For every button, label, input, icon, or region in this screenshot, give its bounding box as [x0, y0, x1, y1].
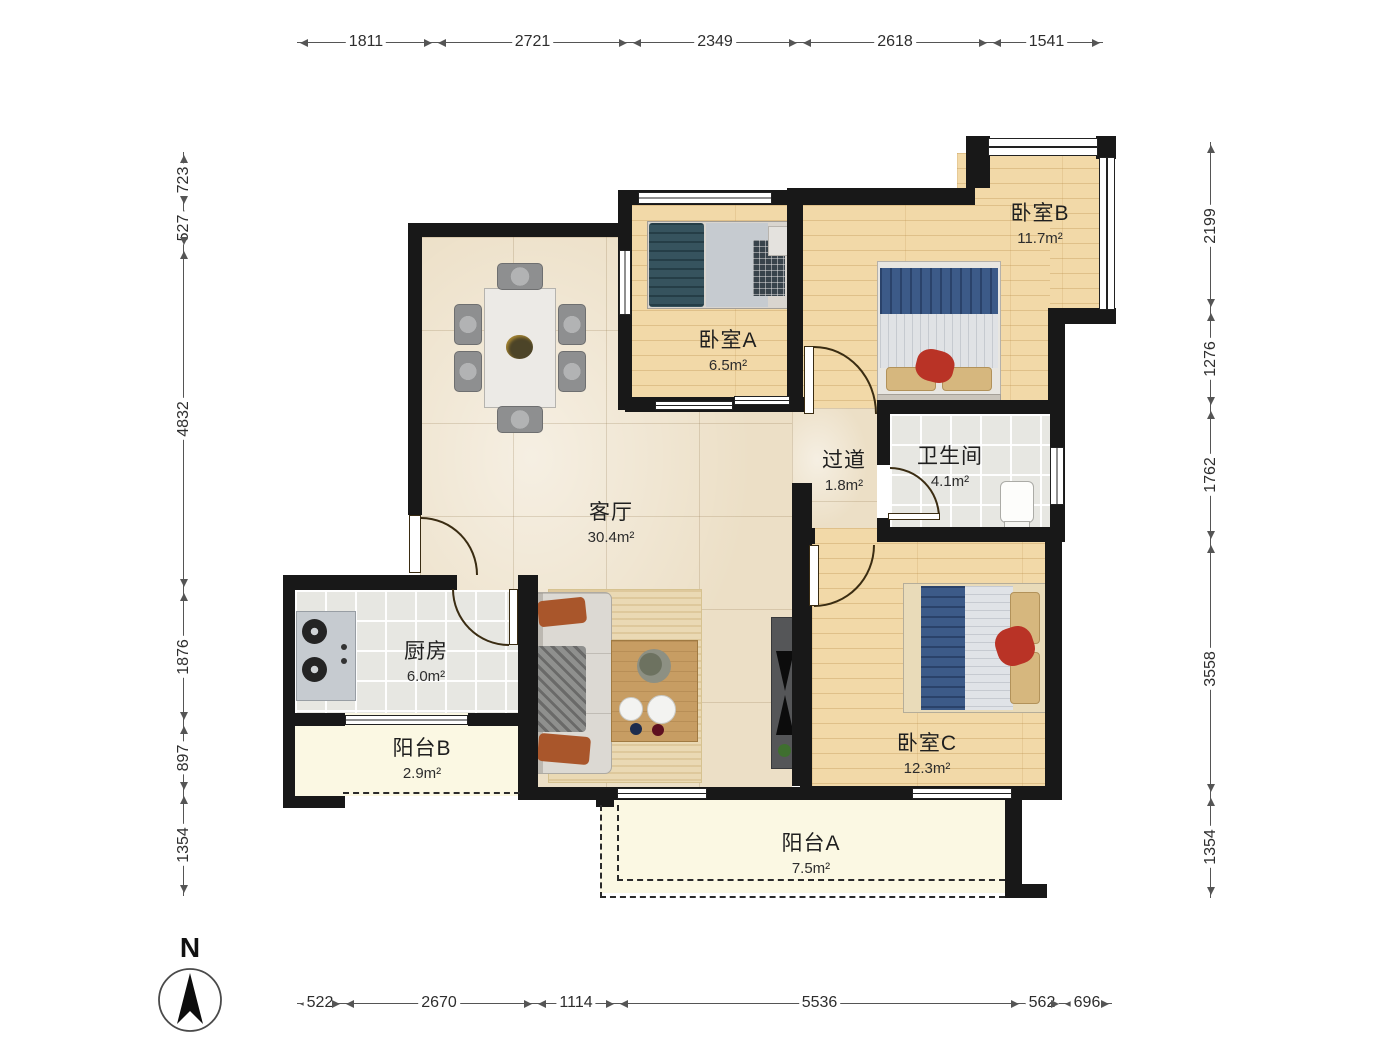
dim-top-2: 2721	[435, 42, 630, 43]
sofa-pillow	[537, 733, 591, 765]
plate	[619, 697, 643, 721]
north-label: N	[150, 932, 230, 964]
window	[619, 250, 631, 315]
wall	[283, 575, 457, 590]
toilet	[1000, 481, 1034, 523]
dining-chair	[558, 304, 586, 345]
dim-top-5: 1541	[990, 42, 1103, 43]
dim-right-4: 3558	[1210, 542, 1211, 795]
north-compass: N	[150, 932, 230, 1039]
window	[1099, 157, 1115, 310]
plate	[647, 695, 676, 724]
kitchen-door-leaf	[509, 589, 518, 645]
stove-burner	[302, 619, 327, 644]
dim-bottom-5: 562	[1022, 1003, 1062, 1004]
stove-knob	[341, 644, 347, 650]
dining-chair	[497, 263, 543, 290]
table-plant	[637, 649, 671, 683]
dim-left-3: 4832	[183, 248, 184, 590]
window	[988, 138, 1098, 156]
dim-bottom-4: 5536	[617, 1003, 1022, 1004]
dining-chair	[454, 304, 482, 345]
wall	[787, 190, 803, 410]
dining-chair	[558, 351, 586, 392]
bedroom-b-door-leaf	[804, 346, 814, 414]
wall	[787, 188, 975, 205]
bathroom-door-leaf	[888, 513, 940, 520]
room-label-bedroom-c: 卧室C12.3m²	[897, 727, 957, 777]
stove-knob	[341, 658, 347, 664]
sofa-blanket	[534, 646, 586, 732]
dim-bottom-6: 696	[1062, 1003, 1112, 1004]
wall	[518, 575, 538, 800]
wall	[408, 223, 422, 515]
wall	[1096, 136, 1116, 159]
dim-right-2: 1276	[1210, 310, 1211, 408]
dim-left-5: 897	[183, 723, 184, 793]
room-label-balcony-b: 阳台B2.9m²	[392, 732, 451, 782]
balcony-door-window	[617, 788, 707, 799]
window	[1050, 447, 1064, 505]
table-centerpiece	[506, 335, 533, 359]
sliding-door-panel	[734, 396, 790, 405]
console-plant	[778, 744, 791, 757]
dim-bottom-3: 1114	[535, 1003, 617, 1004]
bed-blanket-teal	[649, 223, 704, 307]
wall	[1045, 542, 1062, 800]
bed-b-blue-duvet	[880, 268, 998, 314]
bed-c-blue-runner	[921, 586, 965, 710]
dim-top-1: 1811	[297, 42, 435, 43]
room-label-bathroom: 卫生间4.1m²	[917, 440, 983, 490]
wall	[283, 575, 295, 808]
dim-left-4: 1876	[183, 590, 184, 723]
wall	[283, 713, 345, 726]
dining-chair	[454, 351, 482, 392]
wall	[966, 136, 990, 188]
wall	[877, 400, 1065, 414]
dim-left-1: 723	[183, 152, 184, 207]
compass-icon	[150, 966, 230, 1039]
room-label-bedroom-b: 卧室B11.7m²	[1010, 197, 1069, 247]
dim-right-1: 2199	[1210, 142, 1211, 310]
sofa-pillow	[537, 597, 587, 628]
dim-top-4: 2618	[800, 42, 990, 43]
wall	[1005, 800, 1022, 895]
room-label-kitchen: 厨房6.0m²	[404, 635, 448, 685]
wall	[408, 223, 630, 237]
dim-left-6: 1354	[183, 793, 184, 896]
room-label-bedroom-a: 卧室A6.5m²	[698, 324, 757, 374]
floor-plan: 卧室B11.7m² 卧室A6.5m² 过道1.8m² 卫生间4.1m² 客厅30…	[0, 0, 1400, 1050]
dim-left-2: 527	[183, 207, 184, 248]
wall	[877, 527, 1065, 542]
wall	[800, 528, 815, 544]
wall	[877, 414, 890, 465]
window	[912, 788, 1012, 799]
dim-right-5: 1354	[1210, 795, 1211, 898]
dim-bottom-1: 522	[297, 1003, 343, 1004]
room-label-hallway: 过道1.8m²	[822, 444, 866, 494]
wall	[1048, 308, 1065, 414]
dim-top-3: 2349	[630, 42, 800, 43]
bedroom-c-door-leaf	[809, 545, 819, 606]
window	[638, 192, 772, 204]
wall	[1005, 884, 1047, 898]
sliding-door-panel	[655, 401, 733, 410]
room-label-living: 客厅30.4m²	[588, 496, 635, 546]
dim-right-3: 1762	[1210, 408, 1211, 542]
room-label-balcony-a: 阳台A7.5m²	[781, 827, 840, 877]
dim-bottom-2: 2670	[343, 1003, 535, 1004]
stove-burner	[302, 657, 327, 682]
bottle	[630, 723, 642, 735]
dining-chair	[497, 406, 543, 433]
entry-door-leaf	[409, 515, 421, 573]
wall	[283, 796, 345, 808]
bottle	[652, 724, 664, 736]
